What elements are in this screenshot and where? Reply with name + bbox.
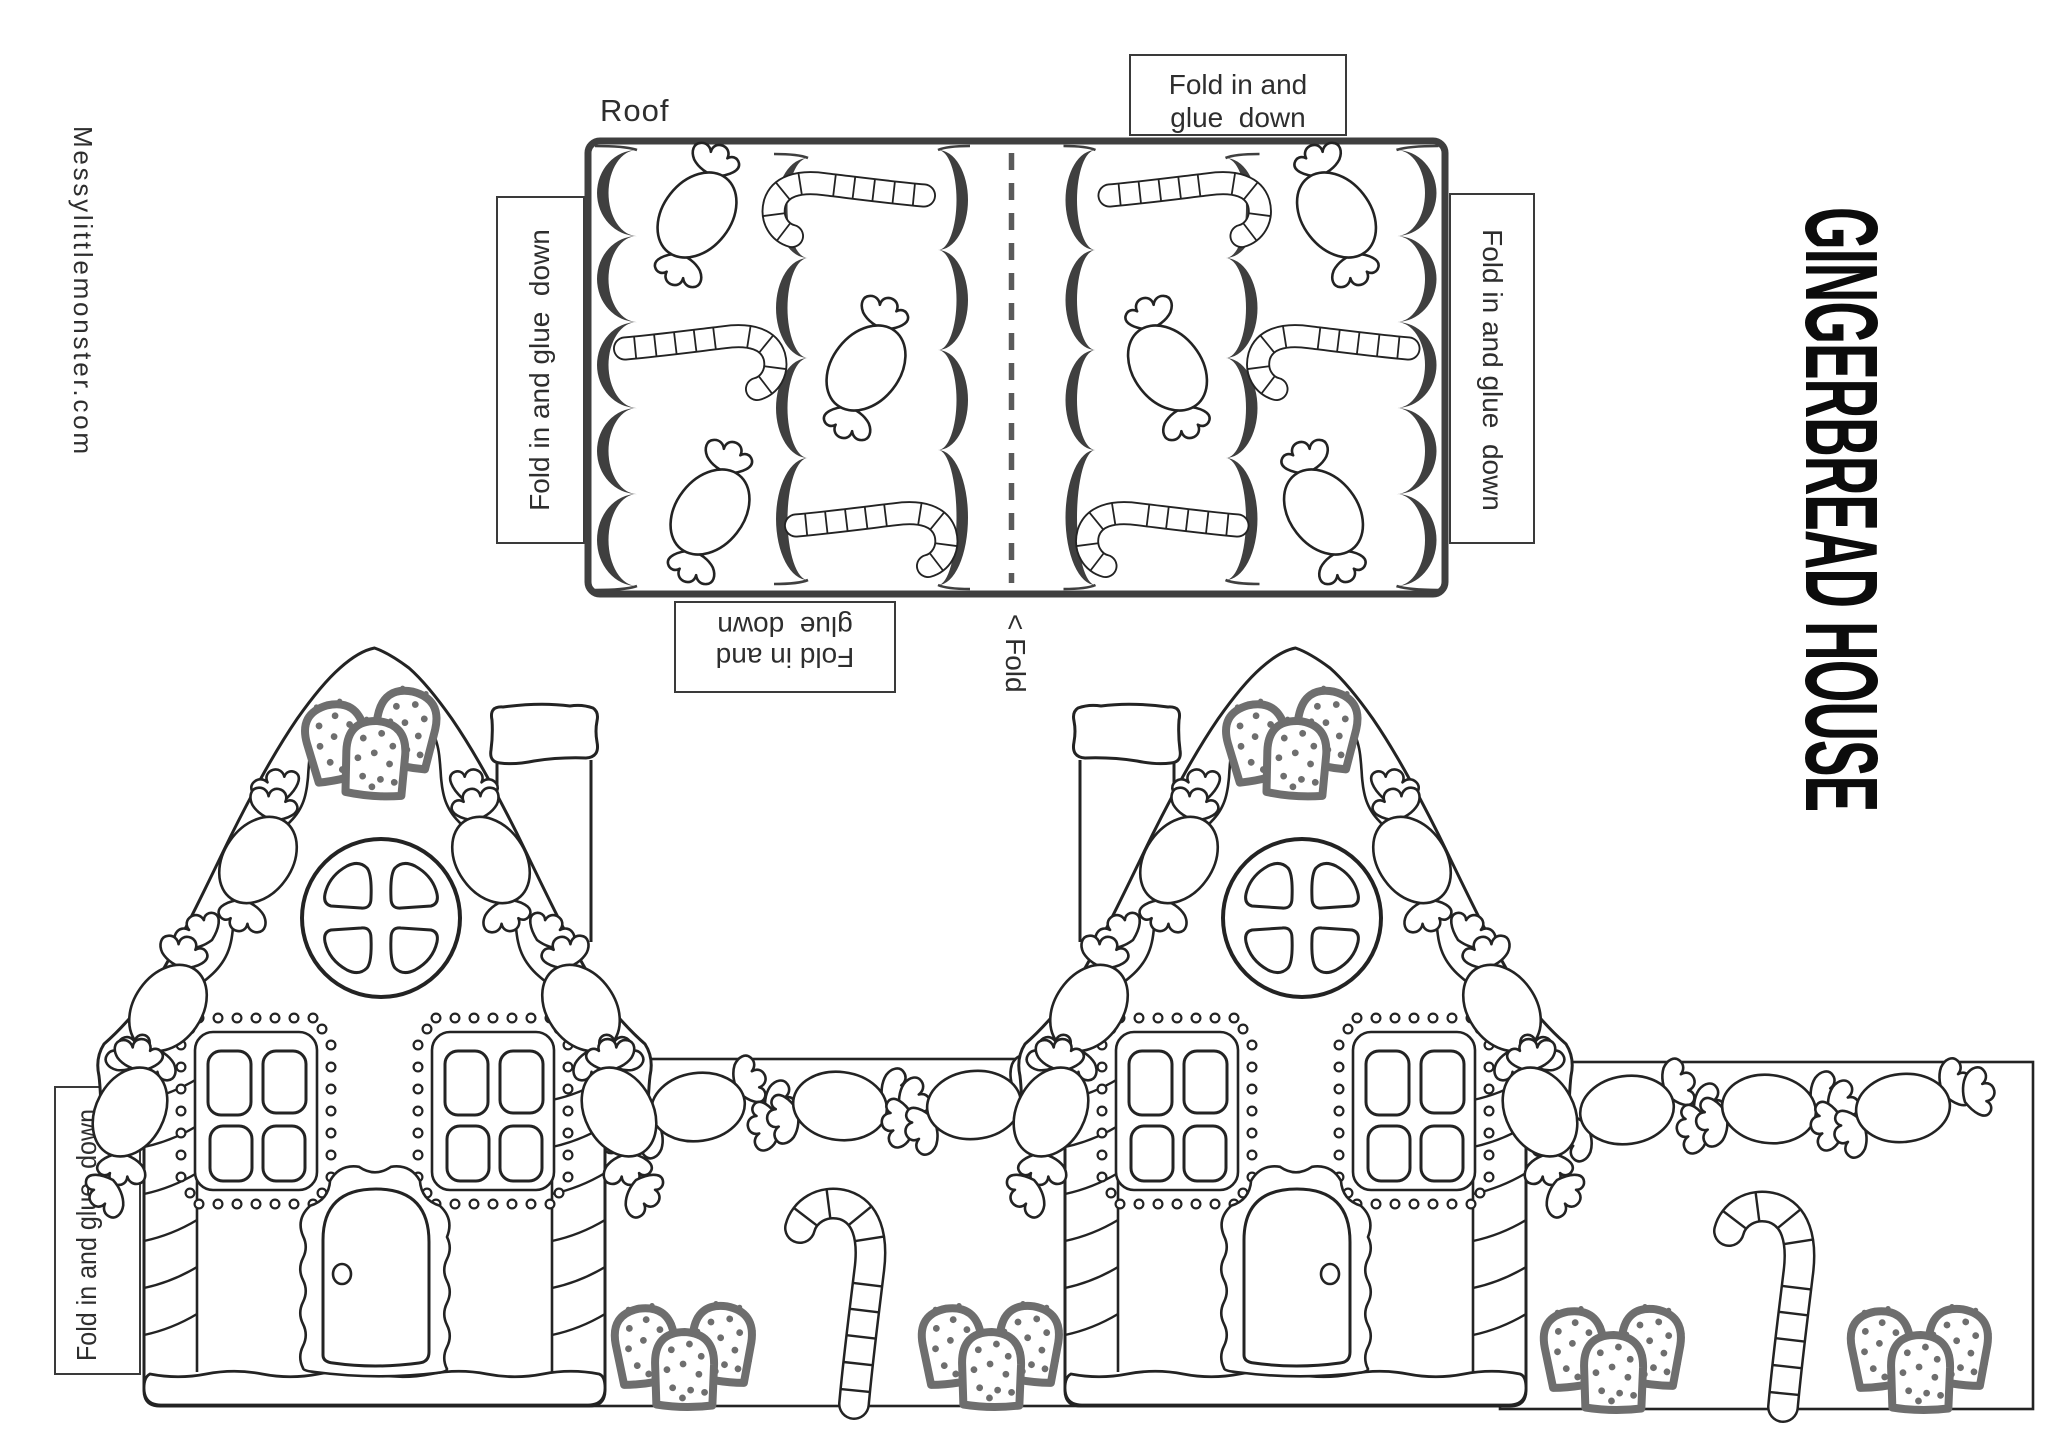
svg-text:glue down: glue down <box>1170 102 1305 133</box>
svg-text:Fold in and: Fold in and <box>1169 69 1308 100</box>
svg-text:Fold in and glue down: Fold in and glue down <box>1477 229 1508 511</box>
svg-text:Fold in and glue down: Fold in and glue down <box>524 229 555 511</box>
svg-text:Messylittlemonster.com: Messylittlemonster.com <box>68 126 98 454</box>
svg-text:GINGERBREAD HOUSE: GINGERBREAD HOUSE <box>1784 207 1899 811</box>
svg-text:glue down: glue down <box>717 611 852 642</box>
svg-text:< Fold: < Fold <box>1000 614 1031 693</box>
svg-text:Fold in and glue down: Fold in and glue down <box>71 1109 102 1361</box>
svg-text:Roof: Roof <box>600 93 669 128</box>
svg-text:Fold in and: Fold in and <box>716 642 855 673</box>
